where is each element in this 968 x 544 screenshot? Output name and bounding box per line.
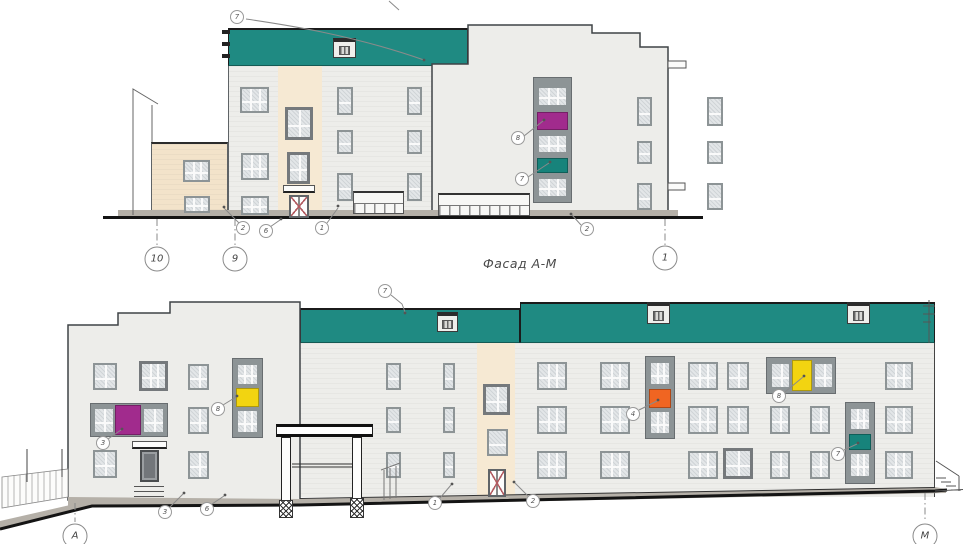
callout-orange: 4 — [626, 407, 640, 421]
callout-ground-b3: 1 — [428, 496, 442, 510]
callout-ground-b2: 6 — [200, 502, 214, 516]
axis-marker-m: М — [913, 524, 938, 544]
axis-marker-9: 9 — [223, 247, 248, 272]
callout-ground-b1: 3 — [158, 505, 172, 519]
callout-ground-t1: 2 — [236, 221, 250, 235]
callout-ground-t2: 6 — [259, 224, 273, 238]
callout-ground-b4: 2 — [526, 494, 540, 508]
axis-marker-1: 1 — [653, 246, 678, 271]
callout-roof-top: 7 — [230, 10, 244, 24]
callout-ground-t3: 1 — [315, 221, 329, 235]
drawing-title: Фасад А-М — [420, 256, 620, 271]
axis-marker-10: 10 — [145, 247, 170, 272]
callout-ground-t4: 2 — [580, 222, 594, 236]
facade-drawing-canvas: Фасад А-М 10 9 1 А М 7 8 7 2 6 1 2 7 3 8… — [0, 0, 968, 544]
annotation-lines — [0, 0, 968, 544]
callout-stair-upper: 8 — [511, 131, 525, 145]
callout-yellow-right: 8 — [772, 389, 786, 403]
callout-yellow-left: 8 — [211, 402, 225, 416]
callout-teal-bottom: 7 — [831, 447, 845, 461]
callout-roof-bottom: 7 — [378, 284, 392, 298]
axis-marker-a: А — [63, 524, 88, 544]
callout-magenta-bottom: 3 — [96, 436, 110, 450]
callout-stair-lower: 7 — [515, 172, 529, 186]
